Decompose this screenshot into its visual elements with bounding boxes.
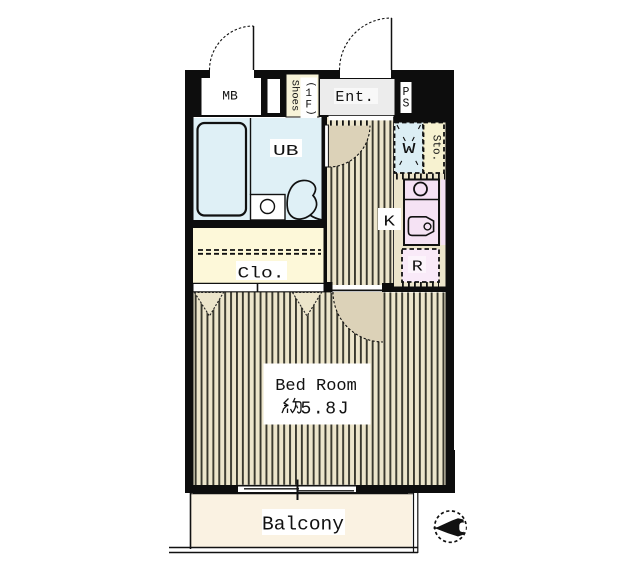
svg-text:Clo.: Clo. xyxy=(238,265,285,283)
svg-text:Sto.: Sto. xyxy=(430,135,442,161)
svg-text:Ent.: Ent. xyxy=(335,89,374,106)
svg-text:K: K xyxy=(384,214,396,231)
svg-text:S: S xyxy=(403,98,410,111)
svg-text:Balcony: Balcony xyxy=(262,514,344,536)
svg-text:MB: MB xyxy=(222,89,238,104)
svg-text:Shoes: Shoes xyxy=(289,80,301,112)
svg-text:): ) xyxy=(305,109,317,115)
svg-text:UB: UB xyxy=(273,143,299,160)
svg-text:1: 1 xyxy=(305,88,312,100)
svg-text:R: R xyxy=(412,260,423,276)
svg-text:Bed Room: Bed Room xyxy=(275,377,357,396)
svg-text:(: ( xyxy=(305,81,317,87)
svg-text:5.8J: 5.8J xyxy=(301,400,351,420)
svg-text:W: W xyxy=(403,142,416,158)
